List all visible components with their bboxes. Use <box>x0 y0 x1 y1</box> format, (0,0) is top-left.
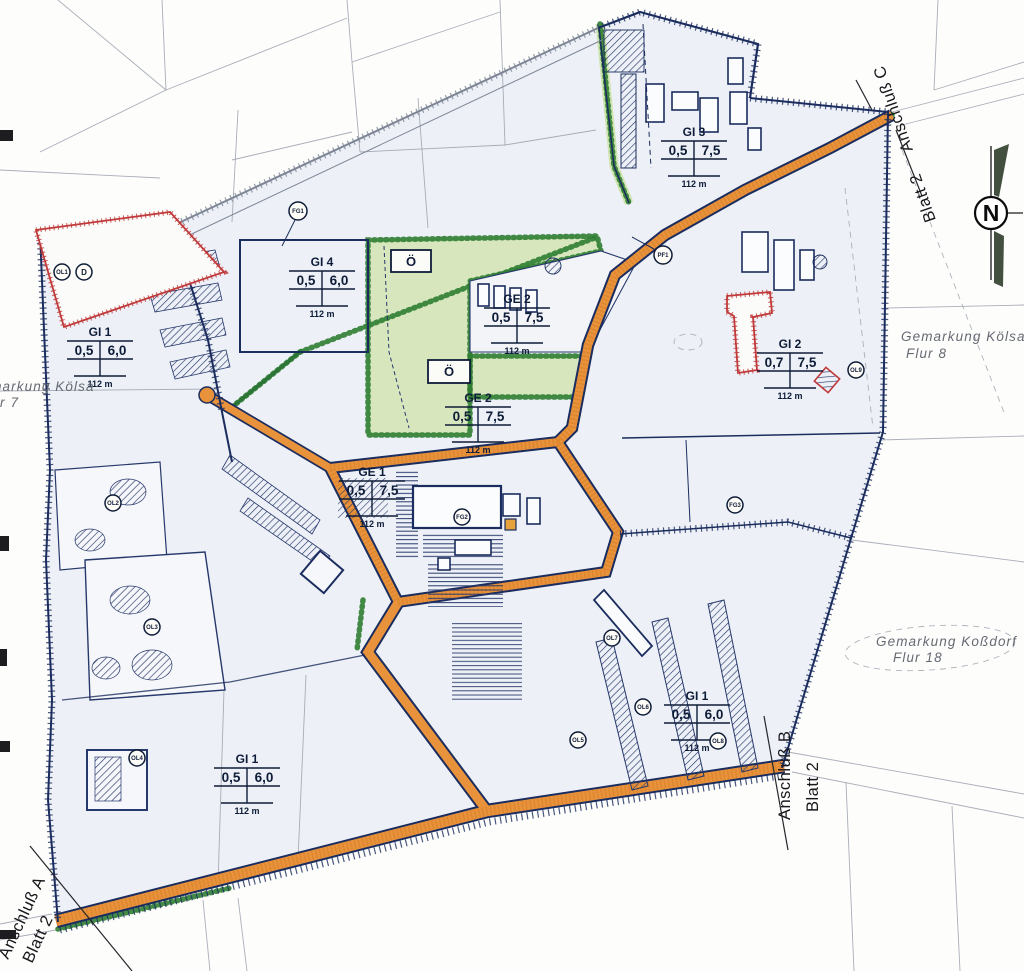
svg-text:6,0: 6,0 <box>108 343 127 358</box>
svg-text:112 m: 112 m <box>777 391 802 401</box>
svg-text:0,5: 0,5 <box>669 143 688 158</box>
svg-text:0,5: 0,5 <box>75 343 94 358</box>
svg-text:112 m: 112 m <box>309 309 334 319</box>
district-label-east: Gemarkung Kölsa Flur 8 <box>901 329 1024 361</box>
green-symbol-north: Ö <box>391 250 431 272</box>
svg-text:Flur 8: Flur 8 <box>906 346 947 361</box>
svg-text:112 m: 112 m <box>359 519 384 529</box>
svg-text:OL4: OL4 <box>131 756 143 762</box>
svg-text:Flur 18: Flur 18 <box>893 650 943 665</box>
connection-label-b: Anschluß B Blatt 2 <box>776 731 822 820</box>
svg-text:OL3: OL3 <box>146 625 158 631</box>
svg-text:112 m: 112 m <box>684 743 709 753</box>
svg-text:112 m: 112 m <box>234 806 259 816</box>
svg-text:Ö: Ö <box>406 254 416 269</box>
svg-text:Gemarkung Koßdorf: Gemarkung Koßdorf <box>876 634 1017 649</box>
svg-text:0,5: 0,5 <box>453 409 472 424</box>
svg-text:0,5: 0,5 <box>297 273 316 288</box>
svg-text:GE 1: GE 1 <box>358 465 386 479</box>
svg-text:112 m: 112 m <box>504 346 529 356</box>
svg-text:OL5: OL5 <box>572 738 584 744</box>
svg-text:0,5: 0,5 <box>492 310 511 325</box>
svg-text:Flur 7: Flur 7 <box>0 395 19 410</box>
svg-text:OL9: OL9 <box>850 368 862 374</box>
development-plan-scan: GI 3 0,5 7,5 112 m GI 4 0,5 6,0 112 m GE… <box>0 0 1024 971</box>
svg-text:Gemarkung Kölsa: Gemarkung Kölsa <box>0 379 95 394</box>
marker-ol1: OL1 <box>54 264 70 280</box>
svg-text:0,5: 0,5 <box>672 707 691 722</box>
svg-text:FG1: FG1 <box>292 209 304 215</box>
svg-text:GE 2: GE 2 <box>503 292 531 306</box>
north-letter: N <box>983 200 1000 226</box>
marker-ol2: OL2 <box>105 495 121 511</box>
svg-text:112 m: 112 m <box>681 179 706 189</box>
svg-text:PF1: PF1 <box>657 253 669 259</box>
svg-text:OL2: OL2 <box>107 501 119 507</box>
svg-text:GI 4: GI 4 <box>311 255 334 269</box>
road-symbol-square <box>505 519 516 530</box>
svg-text:GI 1: GI 1 <box>686 689 709 703</box>
marker-ol6: OL6 <box>635 699 651 715</box>
svg-text:0,5: 0,5 <box>222 770 241 785</box>
svg-text:0,5: 0,5 <box>347 483 366 498</box>
svg-text:GI 3: GI 3 <box>683 125 706 139</box>
svg-text:GI 1: GI 1 <box>236 752 259 766</box>
svg-text:7,5: 7,5 <box>380 483 399 498</box>
svg-text:Blatt 2: Blatt 2 <box>906 171 939 224</box>
svg-text:6,0: 6,0 <box>255 770 274 785</box>
svg-text:7,5: 7,5 <box>702 143 721 158</box>
svg-text:Ö: Ö <box>444 364 454 379</box>
svg-text:112 m: 112 m <box>465 445 490 455</box>
svg-text:7,5: 7,5 <box>798 355 817 370</box>
svg-text:6,0: 6,0 <box>330 273 349 288</box>
marker-ol8: OL8 <box>710 733 726 749</box>
north-arrow: N <box>975 144 1023 287</box>
marker-ol5: OL5 <box>570 732 586 748</box>
svg-text:Blatt 2: Blatt 2 <box>804 762 822 812</box>
north-arrow-blade-bottom <box>994 231 1004 287</box>
marker-ol7: OL7 <box>604 630 620 646</box>
marker-fg3: FG3 <box>727 497 743 513</box>
scan-artifacts <box>0 130 16 939</box>
site-plan-map: GI 3 0,5 7,5 112 m GI 4 0,5 6,0 112 m GE… <box>0 0 1024 971</box>
green-symbol-south: Ö <box>428 360 470 383</box>
marker-fg2: FG2 <box>454 509 470 525</box>
svg-text:OL6: OL6 <box>637 705 649 711</box>
north-arrow-blade-top <box>994 144 1009 197</box>
marker-fg1: FG1 <box>289 202 307 220</box>
svg-text:FG2: FG2 <box>456 515 468 521</box>
svg-text:FG3: FG3 <box>729 503 741 509</box>
svg-text:GI 1: GI 1 <box>89 325 112 339</box>
district-label-southeast: Gemarkung Koßdorf Flur 18 <box>876 634 1017 665</box>
connection-label-a: Anschluß A Blatt 2 <box>0 874 57 966</box>
turning-circle <box>199 387 215 403</box>
svg-text:Anschluß B: Anschluß B <box>776 731 794 820</box>
marker-ol4: OL4 <box>129 750 145 766</box>
svg-text:OL7: OL7 <box>606 636 618 642</box>
svg-text:GI 2: GI 2 <box>779 337 802 351</box>
svg-text:OL8: OL8 <box>712 739 724 745</box>
svg-text:6,0: 6,0 <box>705 707 724 722</box>
svg-text:Gemarkung Kölsa: Gemarkung Kölsa <box>901 329 1024 344</box>
marker-pf1: PF1 <box>654 246 672 264</box>
svg-text:7,5: 7,5 <box>525 310 544 325</box>
svg-text:D: D <box>81 268 87 277</box>
svg-text:GE 2: GE 2 <box>464 391 492 405</box>
marker-ol9: OL9 <box>848 362 864 378</box>
svg-text:7,5: 7,5 <box>486 409 505 424</box>
marker-d: D <box>76 264 92 280</box>
svg-text:OL1: OL1 <box>56 270 68 276</box>
marker-ol3: OL3 <box>144 619 160 635</box>
svg-text:0,7: 0,7 <box>765 355 784 370</box>
